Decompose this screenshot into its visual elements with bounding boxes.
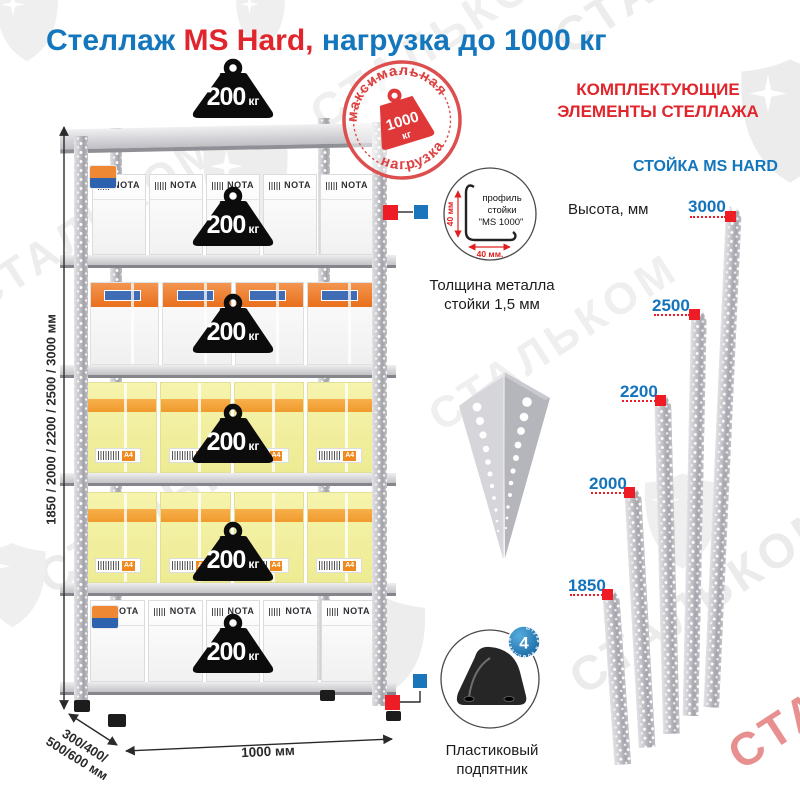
post-profile-detail: 40 мм 40 мм. профиль стойки "MS 1000"	[440, 166, 540, 271]
profile-caption: Толщина металла стойки 1,5 мм	[427, 276, 557, 314]
shelf-foot	[108, 714, 126, 727]
post-height-label-2000: 2000	[589, 474, 627, 494]
shelf	[60, 473, 396, 486]
box-label: A4	[316, 448, 362, 463]
shelf	[60, 682, 396, 695]
marker-square-2000	[624, 487, 635, 498]
profile-dim-vertical: 40 мм	[445, 202, 455, 226]
weight-unit: кг	[248, 649, 259, 663]
weight-value: 200	[207, 428, 246, 456]
brand-sticker	[92, 606, 118, 628]
box-brand-label: NOTA	[284, 180, 311, 190]
box-label	[321, 290, 358, 301]
leader-line-2200	[622, 400, 656, 402]
barcode-icon	[327, 608, 339, 616]
weight-200kg-icon: 200кг	[191, 293, 275, 357]
weight-value: 200	[207, 83, 246, 111]
components-header-line1: КОМПЛЕКТУЮЩИЕ	[548, 79, 768, 101]
profile-caption-line1: Толщина металла	[427, 276, 557, 295]
title-model: MS Hard,	[183, 24, 313, 57]
paper-box: A4	[307, 492, 378, 583]
weight-value: 200	[207, 546, 246, 574]
post-callout-red-square	[383, 205, 398, 220]
weight-unit: кг	[248, 94, 259, 108]
box-band	[308, 399, 377, 412]
box-lid	[91, 283, 158, 307]
leader-line-3000	[690, 216, 726, 218]
profile-label-1: профиль	[482, 193, 521, 204]
box-band	[308, 509, 377, 522]
profile-dim-horizontal: 40 мм.	[477, 249, 504, 259]
leader-line-2500	[654, 314, 690, 316]
shelf-foot	[320, 690, 335, 701]
box-label: A4	[95, 448, 141, 463]
page-title: Стеллаж MS Hard, нагрузка до 1000 кг	[46, 24, 607, 58]
height-units-label: Высота, мм	[568, 201, 648, 218]
width-dimension-label: 1000 мм	[228, 742, 309, 760]
leader-line-2000	[591, 492, 625, 494]
weight-unit: кг	[248, 222, 259, 236]
components-header-line2: ЭЛЕМЕНТЫ СТЕЛЛАЖА	[548, 101, 768, 123]
paper-box: A4	[86, 382, 157, 473]
paper-box	[90, 282, 159, 365]
box-band	[87, 509, 156, 522]
infographic-canvas: СТАЛЬКОМ СТАЛЬКОМ СТАЛЬКОМ СТАЛЬКОМ СТАЛ…	[0, 0, 800, 800]
barcode-icon	[154, 608, 166, 616]
foot-callout-blue-square	[413, 674, 427, 688]
barcode-icon	[319, 451, 341, 460]
strap	[131, 283, 134, 364]
marker-square-2200	[655, 395, 666, 406]
paper-size-label: A4	[122, 561, 135, 571]
shelf	[60, 255, 396, 268]
post-height-label-2200: 2200	[620, 382, 658, 402]
paper-size-label: A4	[343, 561, 356, 571]
box-lid	[308, 283, 375, 307]
weight-200kg-icon: 200кг	[191, 403, 275, 467]
post-height-label-1850: 1850	[568, 576, 606, 596]
marker-square-1850	[602, 589, 613, 600]
paper-box: A4	[307, 382, 378, 473]
paper-box: A4	[86, 492, 157, 583]
foot-caption-line2: подпятник	[427, 760, 557, 779]
box-label	[104, 290, 141, 301]
shelf	[60, 365, 396, 378]
weight-unit: кг	[248, 329, 259, 343]
box-brand-label: NOTA	[113, 180, 140, 190]
badge-count: 4	[519, 634, 529, 653]
profile-label-2: стойки	[487, 205, 516, 216]
box-brand-label: NOTA	[285, 606, 312, 616]
paper-box	[307, 282, 376, 365]
barcode-icon	[98, 561, 120, 570]
box-label: A4	[95, 558, 141, 573]
shelf-foot	[74, 700, 90, 712]
plastic-foot-caption: Пластиковый подпятник	[427, 741, 557, 779]
paper-box: NOTA	[321, 600, 376, 682]
corner-post-image	[447, 360, 557, 570]
weight-value: 200	[207, 211, 246, 239]
post-section-title: СТОЙКА MS HARD	[633, 158, 778, 176]
box-band	[87, 399, 156, 412]
box-label: A4	[316, 558, 362, 573]
foot-caption-line1: Пластиковый	[427, 741, 557, 760]
weight-unit: кг	[248, 557, 259, 571]
marker-square-3000	[725, 211, 736, 222]
post-callout-blue-square	[414, 205, 428, 219]
barcode-icon	[155, 182, 167, 190]
weight-200kg-icon: 200кг	[191, 186, 275, 250]
strap	[276, 283, 279, 364]
weight-200kg-icon: 200кг	[191, 58, 275, 122]
brand-sticker	[90, 166, 116, 188]
weight-200kg-icon: 200кг	[191, 613, 275, 677]
profile-label-3: "MS 1000"	[479, 217, 524, 228]
box-brand-label: NOTA	[343, 606, 370, 616]
marker-square-2500	[689, 309, 700, 320]
paper-size-label: A4	[122, 451, 135, 461]
paper-size-label: A4	[343, 451, 356, 461]
shield-watermark-icon	[0, 540, 50, 630]
title-load: нагрузка до 1000 кг	[322, 24, 607, 57]
foot-callout-red-square	[385, 695, 400, 710]
weight-200kg-icon: 200кг	[191, 521, 275, 585]
weight-value: 200	[207, 318, 246, 346]
leader-line-1850	[570, 594, 603, 596]
barcode-icon	[319, 561, 341, 570]
height-dimension-label: 1850 / 2000 / 2200 / 2500 / 3000 мм	[44, 290, 59, 550]
profile-caption-line2: стойки 1,5 мм	[427, 295, 557, 314]
weight-unit: кг	[248, 439, 259, 453]
title-product: Стеллаж	[46, 24, 175, 57]
post-height-label-2500: 2500	[652, 296, 690, 316]
components-header: КОМПЛЕКТУЮЩИЕ ЭЛЕМЕНТЫ СТЕЛЛАЖА	[548, 79, 768, 123]
weight-value: 200	[207, 638, 246, 666]
strap	[348, 283, 351, 364]
barcode-icon	[326, 182, 338, 190]
barcode-icon	[98, 451, 120, 460]
shelf-foot	[386, 711, 401, 721]
post-height-label-3000: 3000	[688, 197, 726, 217]
shelf-front-left-post	[74, 136, 88, 700]
quantity-badge: 4 штуки в комплекте	[506, 624, 542, 665]
post-3000-image	[703, 206, 742, 708]
